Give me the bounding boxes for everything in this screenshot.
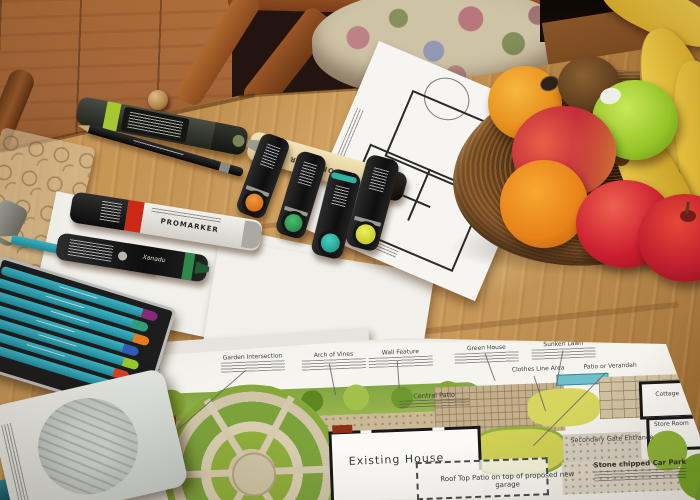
bench — [332, 425, 352, 434]
pencil-tip — [122, 357, 140, 370]
door-gap-2 — [432, 427, 444, 430]
callout-clothes-line: Clothes Line Area — [498, 364, 578, 374]
cabinet-knob — [148, 90, 168, 110]
sunken-lawn-area — [527, 387, 600, 428]
pencil-tip — [122, 344, 140, 357]
pencil-tip — [132, 333, 150, 346]
cap-text — [99, 201, 122, 224]
pencil-tip — [141, 309, 159, 322]
callout-patio-verandah: Patio or Verandah — [570, 361, 650, 371]
callout-desc — [302, 358, 366, 370]
callout-desc — [455, 351, 519, 363]
callout-desc — [221, 360, 285, 372]
tin-lid-emblem — [29, 388, 148, 500]
orange-front — [500, 160, 588, 248]
callout-desc — [531, 347, 595, 359]
photo-garden-plan-desk: PROMARKER PROMARKER — [0, 0, 700, 500]
pencil-tip — [131, 319, 149, 332]
callout-desc — [369, 356, 433, 368]
door-gap — [360, 430, 371, 433]
